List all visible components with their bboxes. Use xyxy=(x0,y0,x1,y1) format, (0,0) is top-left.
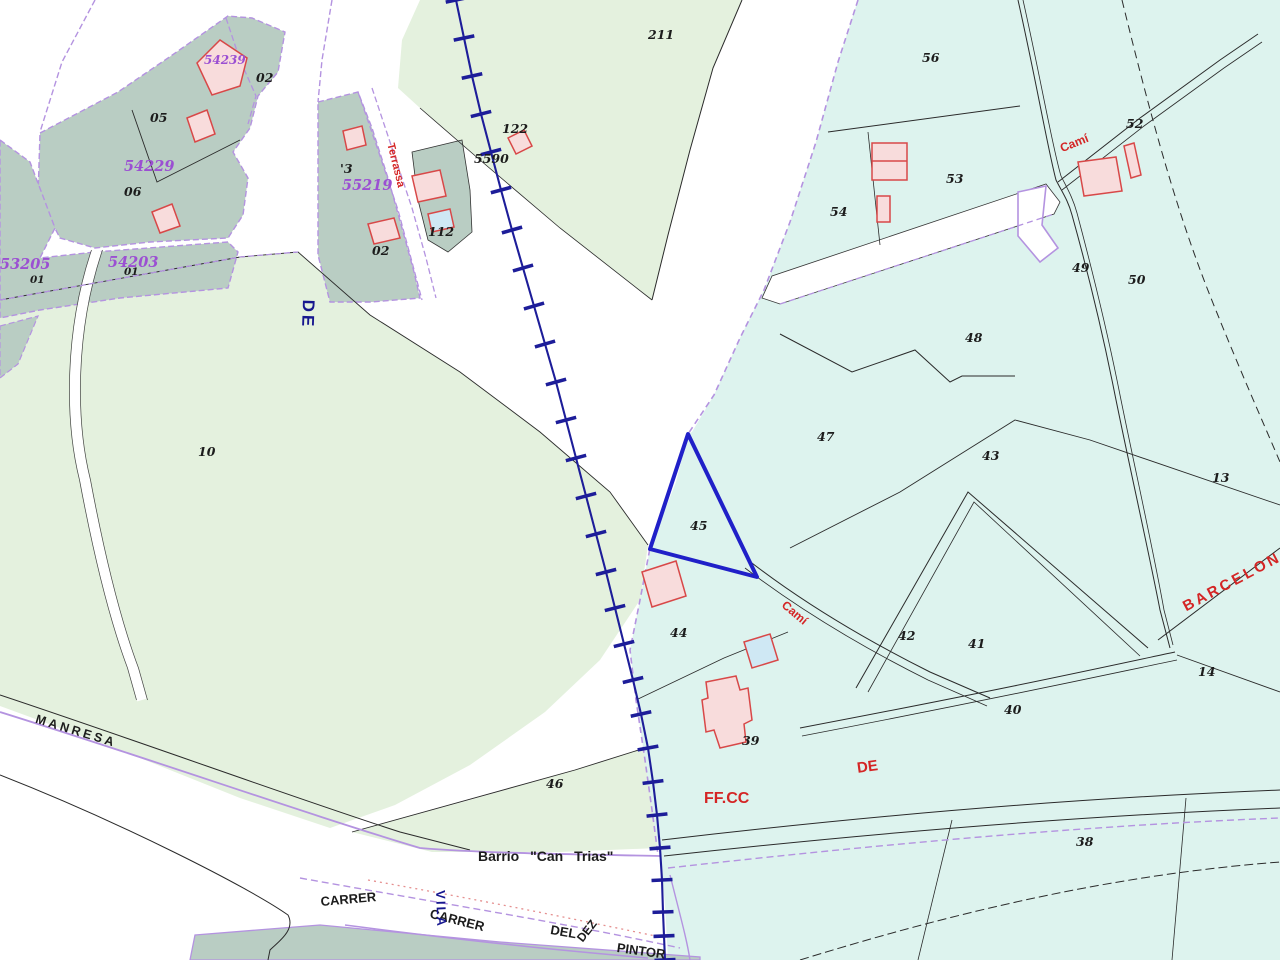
building xyxy=(1078,157,1122,196)
parcel-label-10: 10 xyxy=(198,444,215,459)
parcel-label-54: 54 xyxy=(830,204,847,219)
parcel-label-14: 14 xyxy=(1198,664,1215,679)
parcel-label-122: 122 xyxy=(502,121,528,136)
parcel-label-44: 44 xyxy=(670,625,687,640)
parcel-label-01: 01 xyxy=(30,274,45,286)
parcel-ref-53205: 53205 xyxy=(0,256,50,273)
building xyxy=(343,126,366,150)
parcel-label-56: 56 xyxy=(922,50,939,65)
parcel-label-3: '3 xyxy=(340,161,353,176)
pink-dotted-boundary xyxy=(368,880,665,938)
parcel-label-48: 48 xyxy=(965,330,982,345)
parcel-label-13: 13 xyxy=(1212,470,1229,485)
parcel-ref-55219: 55219 xyxy=(342,177,392,194)
railway-label-ffcc: FF.CC xyxy=(704,790,749,808)
parcel-label-47: 47 xyxy=(817,429,834,444)
parcel-label-01: 01 xyxy=(124,266,139,278)
district-label-barrio-can-trias: Barrio "Can Trias" xyxy=(478,848,613,864)
parcel-label-53: 53 xyxy=(946,171,963,186)
parcel-label-42: 42 xyxy=(898,628,915,643)
parcel-label-41: 41 xyxy=(968,636,985,651)
parcel-label-40: 40 xyxy=(1004,702,1021,717)
road-label-de: DE xyxy=(856,757,879,777)
street-label-vila: VILA xyxy=(433,890,449,928)
parcel-label-49: 49 xyxy=(1072,260,1089,275)
parcel-label-45: 45 xyxy=(690,518,707,533)
building xyxy=(877,196,890,222)
parcel-label-38: 38 xyxy=(1076,834,1093,849)
municipality-label-de: DE xyxy=(297,299,318,329)
parcel-label-5590: 5590 xyxy=(474,151,509,166)
parcel-label-46: 46 xyxy=(546,776,563,791)
parcel-label-02: 02 xyxy=(256,70,273,85)
parcel-label-112: 112 xyxy=(428,224,454,239)
parcel-label-06: 06 xyxy=(124,184,141,199)
parcel-label-52: 52 xyxy=(1126,116,1143,131)
parcel-label-211: 211 xyxy=(648,27,674,42)
parcel-label-05: 05 xyxy=(150,110,167,125)
parcel-ref-54229: 54229 xyxy=(124,158,174,175)
parcel-label-50: 50 xyxy=(1128,272,1145,287)
parcel-ref-54239: 54239 xyxy=(204,53,246,67)
parcel-label-02: 02 xyxy=(372,243,389,258)
parcel-label-43: 43 xyxy=(982,448,999,463)
parcel-label-39: 39 xyxy=(742,733,759,748)
cadastral-map: 54239 54229 55219 53205 54203 01 01 02 0… xyxy=(0,0,1280,960)
building xyxy=(412,170,446,202)
